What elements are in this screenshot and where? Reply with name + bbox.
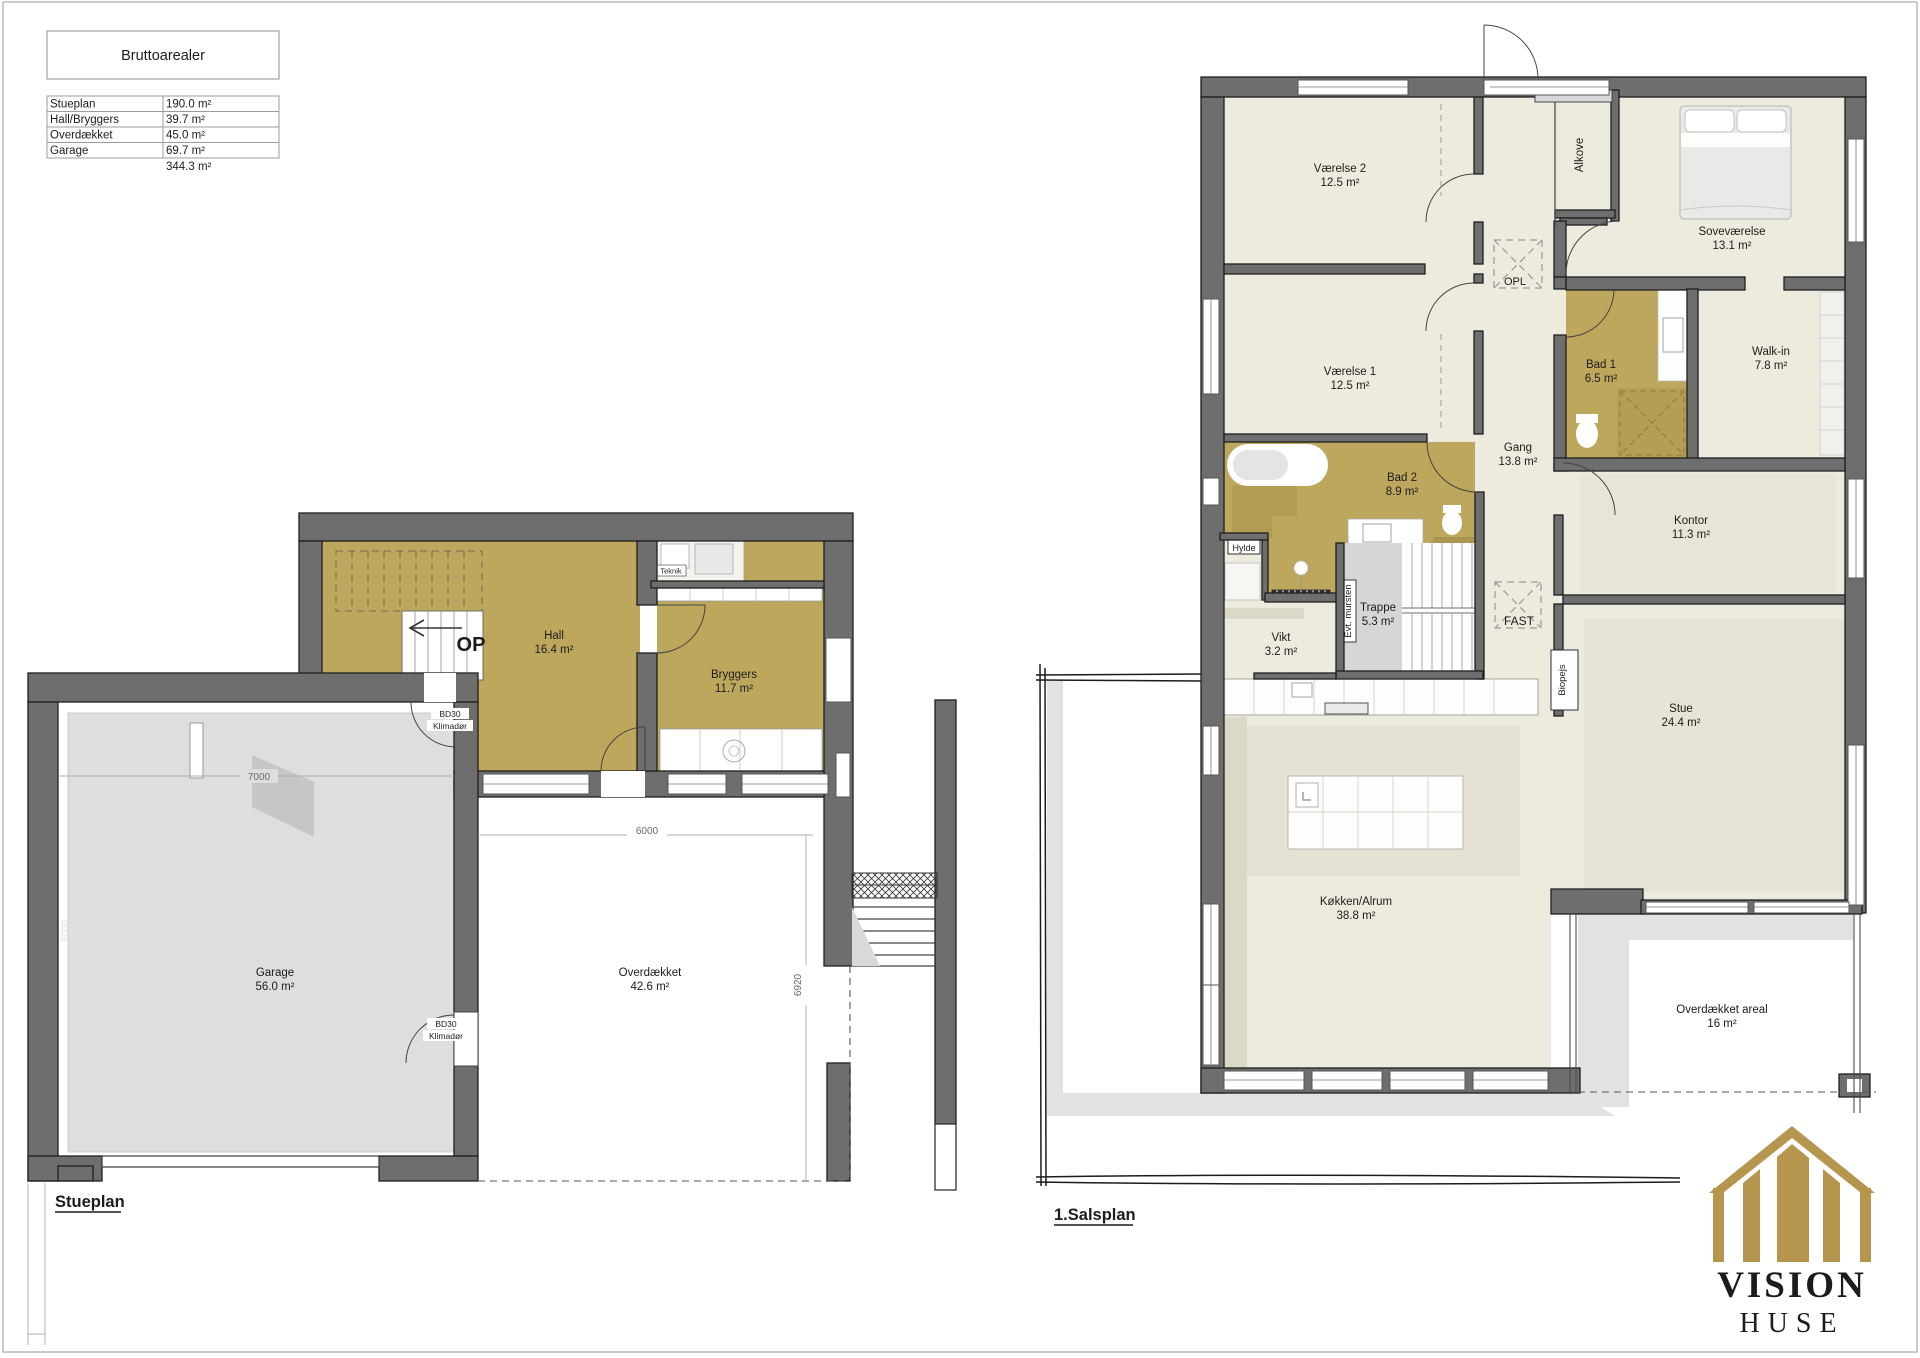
svg-text:Bryggers: Bryggers bbox=[711, 669, 757, 681]
svg-text:16.4 m²: 16.4 m² bbox=[535, 644, 574, 656]
svg-text:Alkove: Alkove bbox=[1574, 138, 1586, 173]
svg-text:Soveværelse: Soveværelse bbox=[1698, 226, 1765, 238]
svg-text:Overdækket: Overdækket bbox=[619, 967, 682, 979]
svg-text:8.9 m²: 8.9 m² bbox=[1386, 486, 1419, 498]
svg-text:Klimadør: Klimadør bbox=[429, 1031, 463, 1041]
svg-text:FAST: FAST bbox=[1504, 614, 1535, 628]
svg-text:VISION: VISION bbox=[1717, 1265, 1867, 1306]
svg-text:Værelse 2: Værelse 2 bbox=[1314, 163, 1366, 175]
svg-text:Vikt: Vikt bbox=[1272, 632, 1292, 644]
svg-text:344.3 m²: 344.3 m² bbox=[166, 161, 212, 173]
svg-text:Klimadør: Klimadør bbox=[433, 721, 467, 731]
svg-text:42.6 m²: 42.6 m² bbox=[631, 981, 670, 993]
svg-text:Garage: Garage bbox=[50, 145, 88, 157]
svg-text:Bad 1: Bad 1 bbox=[1586, 359, 1616, 371]
svg-text:OPL: OPL bbox=[1504, 276, 1526, 288]
svg-text:3.2 m²: 3.2 m² bbox=[1265, 646, 1298, 658]
svg-text:7.8 m²: 7.8 m² bbox=[1755, 360, 1788, 372]
svg-text:Stueplan: Stueplan bbox=[55, 1193, 125, 1211]
svg-text:Biopejs: Biopejs bbox=[1557, 664, 1568, 695]
svg-text:Teknik: Teknik bbox=[660, 567, 682, 576]
svg-text:Køkken/Alrum: Køkken/Alrum bbox=[1320, 896, 1392, 908]
svg-text:16 m²: 16 m² bbox=[1707, 1018, 1737, 1030]
svg-text:56.0 m²: 56.0 m² bbox=[256, 981, 295, 993]
svg-text:Bruttoarealer: Bruttoarealer bbox=[121, 48, 205, 64]
svg-text:Evt. mursten: Evt. mursten bbox=[1343, 584, 1354, 637]
svg-text:Overdækket: Overdækket bbox=[50, 130, 113, 142]
svg-text:Walk-in: Walk-in bbox=[1752, 346, 1790, 358]
svg-text:6000: 6000 bbox=[636, 826, 659, 837]
svg-text:Værelse 1: Værelse 1 bbox=[1324, 366, 1376, 378]
svg-text:5.3 m²: 5.3 m² bbox=[1362, 616, 1395, 628]
svg-text:6.5 m²: 6.5 m² bbox=[1585, 373, 1618, 385]
svg-text:12.5 m²: 12.5 m² bbox=[1331, 380, 1370, 392]
svg-text:45.0 m²: 45.0 m² bbox=[166, 130, 205, 142]
svg-text:7000: 7000 bbox=[248, 772, 271, 783]
svg-text:Hall/Bryggers: Hall/Bryggers bbox=[50, 114, 119, 126]
svg-text:8000: 8000 bbox=[60, 919, 71, 942]
svg-text:BD30: BD30 bbox=[439, 709, 461, 719]
svg-text:12.5 m²: 12.5 m² bbox=[1321, 177, 1360, 189]
svg-text:Bad 2: Bad 2 bbox=[1387, 472, 1417, 484]
svg-text:69.7 m²: 69.7 m² bbox=[166, 145, 205, 157]
svg-text:Stueplan: Stueplan bbox=[50, 99, 95, 111]
svg-text:Garage: Garage bbox=[256, 967, 294, 979]
svg-text:39.7 m²: 39.7 m² bbox=[166, 114, 205, 126]
svg-text:13.1 m²: 13.1 m² bbox=[1713, 240, 1752, 252]
svg-text:OP: OP bbox=[457, 634, 486, 656]
svg-text:Gang: Gang bbox=[1504, 442, 1532, 454]
svg-text:190.0 m²: 190.0 m² bbox=[166, 99, 212, 111]
svg-text:6920: 6920 bbox=[793, 973, 804, 996]
svg-text:Kontor: Kontor bbox=[1674, 515, 1708, 527]
svg-text:1.Salsplan: 1.Salsplan bbox=[1054, 1206, 1136, 1224]
svg-text:24.4 m²: 24.4 m² bbox=[1662, 717, 1701, 729]
svg-text:BD30: BD30 bbox=[435, 1019, 457, 1029]
svg-text:38.8 m²: 38.8 m² bbox=[1337, 910, 1376, 922]
svg-text:Trappe: Trappe bbox=[1360, 602, 1396, 614]
svg-text:Hall: Hall bbox=[544, 630, 564, 642]
svg-text:Stue: Stue bbox=[1669, 703, 1693, 715]
svg-text:Overdækket areal: Overdækket areal bbox=[1676, 1004, 1767, 1016]
svg-text:HUSE: HUSE bbox=[1739, 1308, 1844, 1339]
svg-text:11.3 m²: 11.3 m² bbox=[1672, 529, 1710, 541]
svg-text:13.8 m²: 13.8 m² bbox=[1499, 456, 1538, 468]
svg-text:11.7 m²: 11.7 m² bbox=[715, 683, 753, 695]
svg-text:Hylde: Hylde bbox=[1232, 543, 1255, 553]
